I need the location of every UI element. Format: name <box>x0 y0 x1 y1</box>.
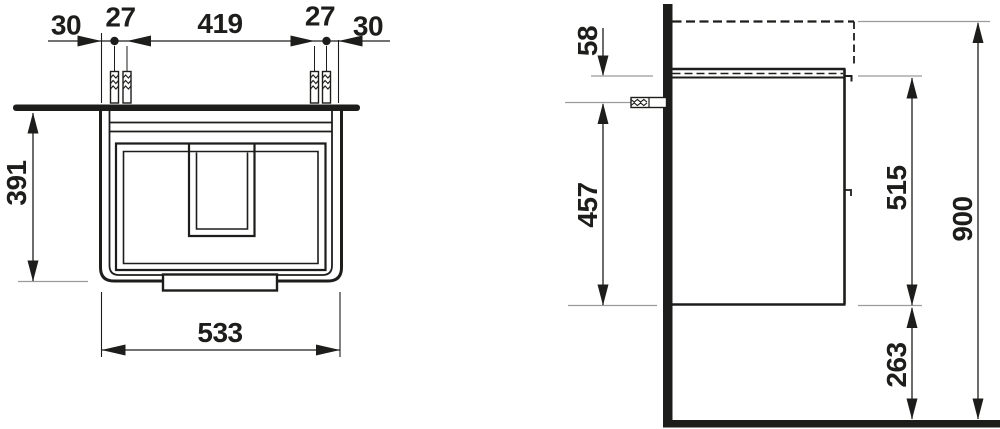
side-view: 58 457 515 263 900 <box>565 4 1000 428</box>
dimension-arrow <box>907 78 918 99</box>
vanity-dimension-drawing: 30 27 419 27 30 391 533 <box>0 0 1000 429</box>
dim-width: 533 <box>197 317 242 348</box>
dim-plug-pair-left: 27 <box>105 2 135 33</box>
dim-edge-to-plug-left: 30 <box>51 10 81 41</box>
dimension-arrow <box>907 399 918 420</box>
dim-plug-pair-right: 27 <box>305 1 335 32</box>
dim-floor-clearance: 263 <box>881 342 912 387</box>
dim-depth: 391 <box>1 160 32 205</box>
dimension-arrow <box>28 113 39 134</box>
dim-plug-span: 419 <box>197 8 242 39</box>
dimension-arrow <box>973 22 984 43</box>
dimension-dot <box>322 37 330 45</box>
dim-edge-to-plug-right: 30 <box>353 11 383 42</box>
dimension-arrow <box>127 36 151 47</box>
dim-cabinet-height: 515 <box>881 165 912 210</box>
dim-plug-to-cabinet-bottom: 457 <box>572 182 603 227</box>
drawer-front-edge <box>163 275 277 291</box>
dimension-arrow <box>598 56 609 77</box>
dim-basin-top-to-carcass: 58 <box>572 26 603 56</box>
wall-plug-icon <box>111 46 119 103</box>
drawer-handle-notch <box>846 190 852 196</box>
technical-drawing-canvas: 30 27 419 27 30 391 533 <box>0 0 1000 429</box>
dimension-arrow <box>78 36 102 47</box>
dimension-arrow <box>316 345 340 356</box>
dimension-arrow <box>973 399 984 420</box>
dimension-dot <box>110 37 118 45</box>
wall-plug-icon <box>311 46 319 103</box>
dimension-arrow <box>907 285 918 306</box>
dimension-arrow <box>102 345 126 356</box>
dimension-arrow <box>598 103 609 124</box>
wall-line <box>663 4 673 428</box>
wall-plug-icon <box>323 46 331 103</box>
floor-line <box>663 420 1000 428</box>
wall-line <box>13 105 360 112</box>
wall-plug-icon <box>123 46 131 103</box>
dimension-arrow <box>291 36 315 47</box>
wall-plug-icon <box>631 98 667 108</box>
bottom-view: 30 27 419 27 30 391 533 <box>1 1 390 358</box>
dim-total-height: 900 <box>947 196 978 241</box>
dimension-arrow <box>907 307 918 328</box>
dimension-arrow <box>598 285 609 306</box>
basin-rim-edge <box>846 76 852 82</box>
cabinet-outline <box>101 111 342 281</box>
dimension-arrow <box>28 261 39 282</box>
